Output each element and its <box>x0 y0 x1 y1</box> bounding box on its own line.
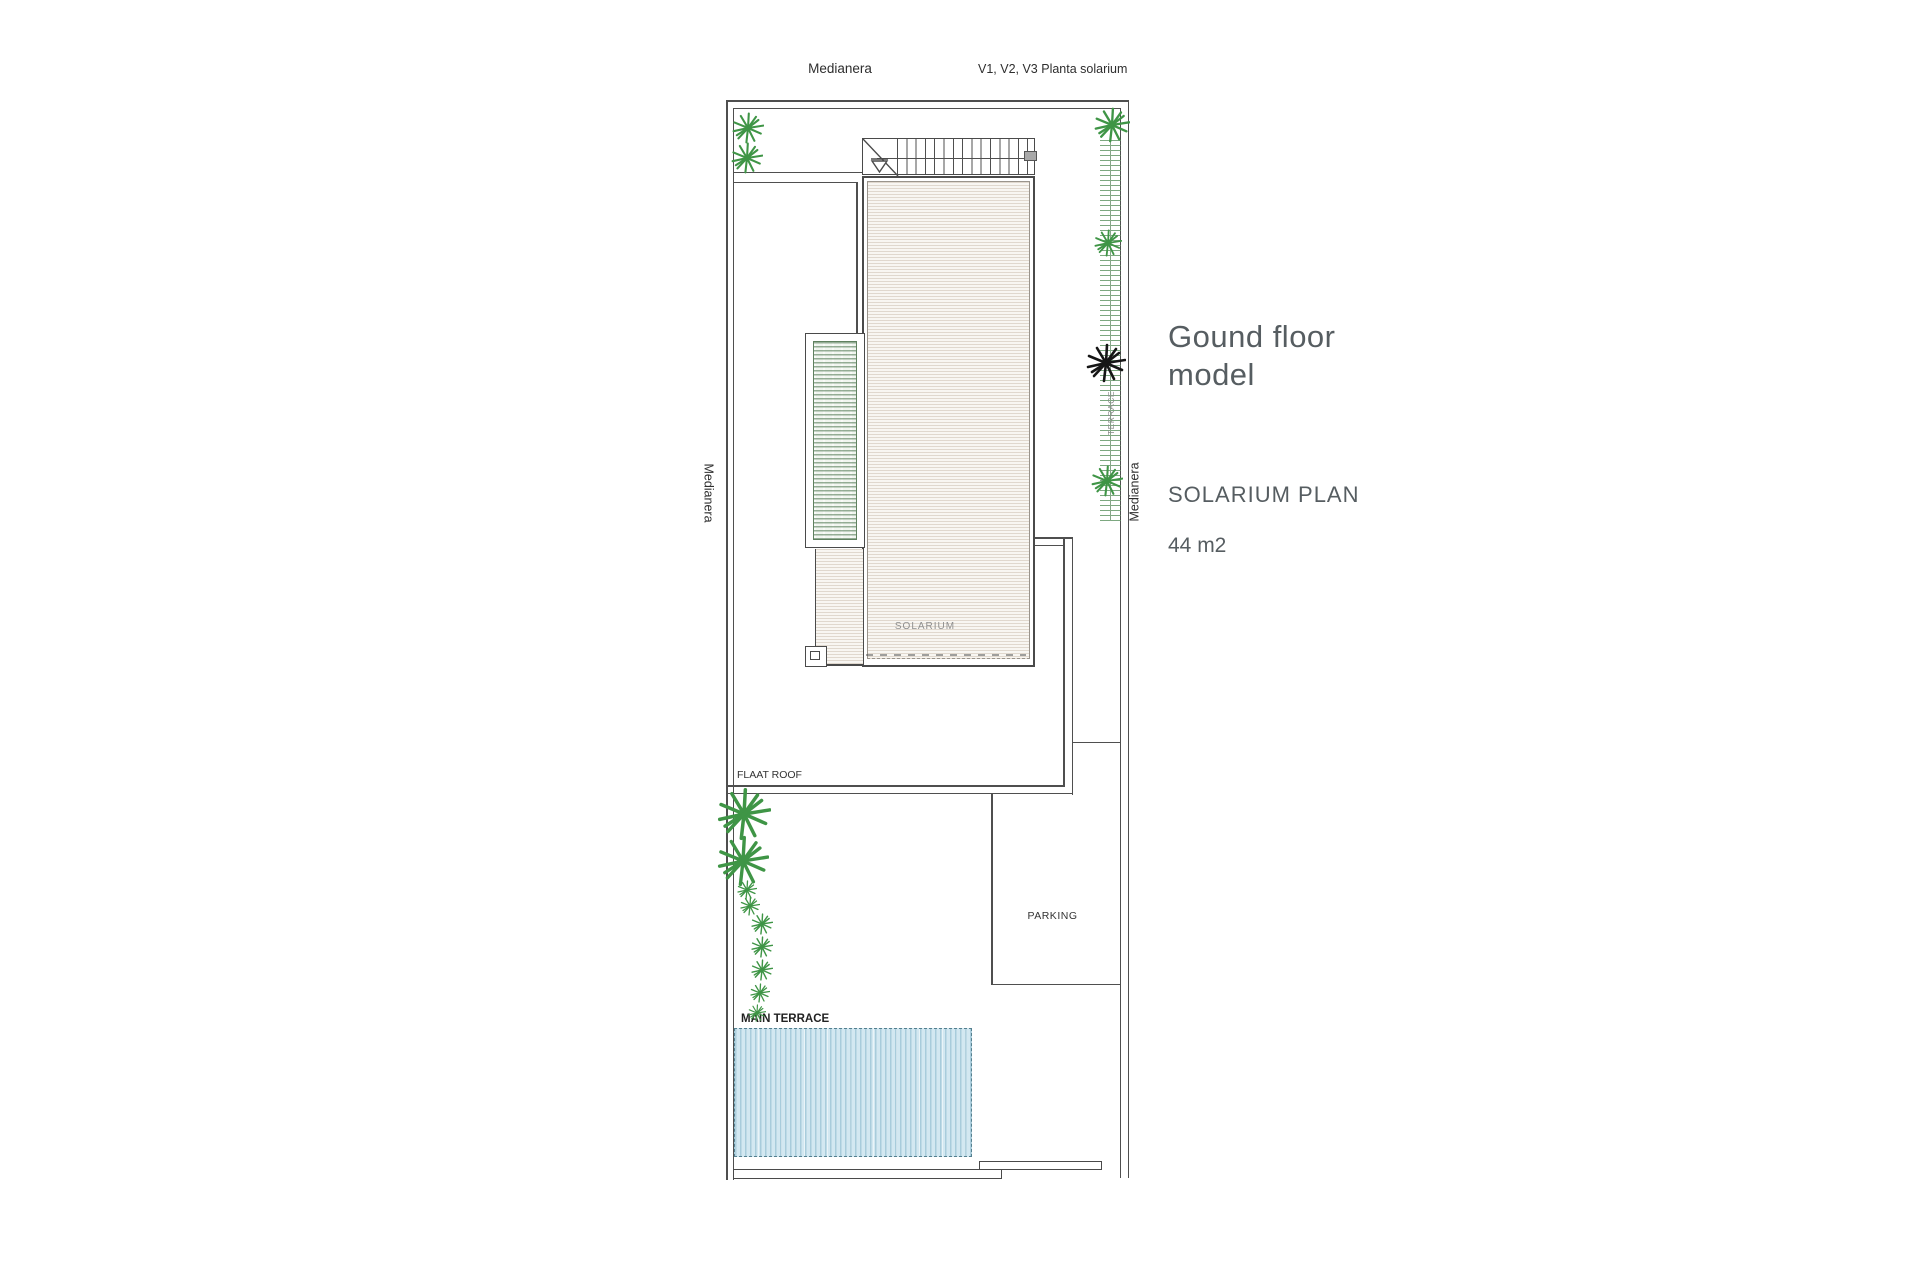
top-strip-wall <box>733 172 863 173</box>
label-solarium: SOLARIUM <box>865 621 985 632</box>
flatroof-right-inner <box>1063 537 1065 787</box>
solarium-column-core <box>810 651 820 660</box>
plant-icon <box>1094 107 1130 143</box>
label-terrace: TERRACE <box>1106 391 1116 435</box>
plan-name: SOLARIUM PLAN <box>1168 482 1468 508</box>
left-room-right-wall <box>856 182 858 334</box>
plan-title-line2: model <box>1168 356 1468 394</box>
floor-plan-page: Medianera V1, V2, V3 Planta solarium SOL… <box>0 0 1920 1280</box>
side-step-line <box>1072 742 1121 743</box>
plot-wall-top-outer <box>726 100 1129 102</box>
plant-icon <box>717 835 769 887</box>
plant-icon <box>737 880 757 900</box>
plot-wall-right-outer <box>1128 100 1130 1178</box>
label-medianera-right: Medianera <box>1128 462 1142 521</box>
stair-landing-marker <box>1024 151 1037 161</box>
plant-icon <box>731 142 763 174</box>
flatroof-right-outer <box>1072 537 1074 795</box>
plant-icon <box>751 913 773 935</box>
stair-direction-arrow-icon <box>863 139 903 176</box>
stair-treads <box>897 139 1035 174</box>
terrace-strip-centerline <box>1110 140 1111 521</box>
solarium-floor-hatch <box>867 181 1031 659</box>
plant-icon <box>751 936 773 958</box>
staircase <box>862 138 1036 175</box>
label-medianera-left: Medianera <box>702 463 716 522</box>
flatroof-bottom-inner <box>727 785 1065 787</box>
planter-green-hatch <box>813 341 857 540</box>
flatroof-top-right-1 <box>1035 537 1073 539</box>
plan-title: Gound floor model <box>1168 318 1468 394</box>
swimming-pool <box>734 1028 972 1157</box>
parking-bottom-wall <box>991 984 1121 986</box>
label-windows-note: V1, V2, V3 Planta solarium <box>978 62 1127 76</box>
plan-title-line1: Gound floor <box>1168 318 1468 356</box>
label-main-terrace: MAIN TERRACE <box>741 1013 829 1025</box>
info-panel: Gound floor model SOLARIUM PLAN 44 m2 <box>1168 318 1468 558</box>
label-medianera-top: Medianera <box>790 61 890 76</box>
bottom-wall-left <box>733 1169 1002 1179</box>
watermark-row <box>866 654 1026 656</box>
plot-wall-left-outer <box>726 100 728 1180</box>
left-room-top-wall <box>734 182 858 184</box>
solarium-column <box>805 646 827 667</box>
plan-area: 44 m2 <box>1168 534 1468 558</box>
bottom-wall-right <box>979 1161 1102 1170</box>
plant-icon <box>751 959 773 981</box>
plant-icon <box>732 112 764 144</box>
label-parking: PARKING <box>1000 910 1105 922</box>
label-flat-roof: FLAAT ROOF <box>737 769 802 781</box>
flatroof-bottom-outer <box>727 793 1073 795</box>
flatroof-top-right-2 <box>1035 545 1064 546</box>
plant-icon <box>740 896 760 916</box>
solarium-room <box>862 176 1036 667</box>
plot-wall-top-inner <box>733 108 1121 109</box>
plant-icon <box>750 983 770 1003</box>
parking-left-wall <box>991 794 993 985</box>
plot-wall-left-inner <box>733 108 734 1180</box>
